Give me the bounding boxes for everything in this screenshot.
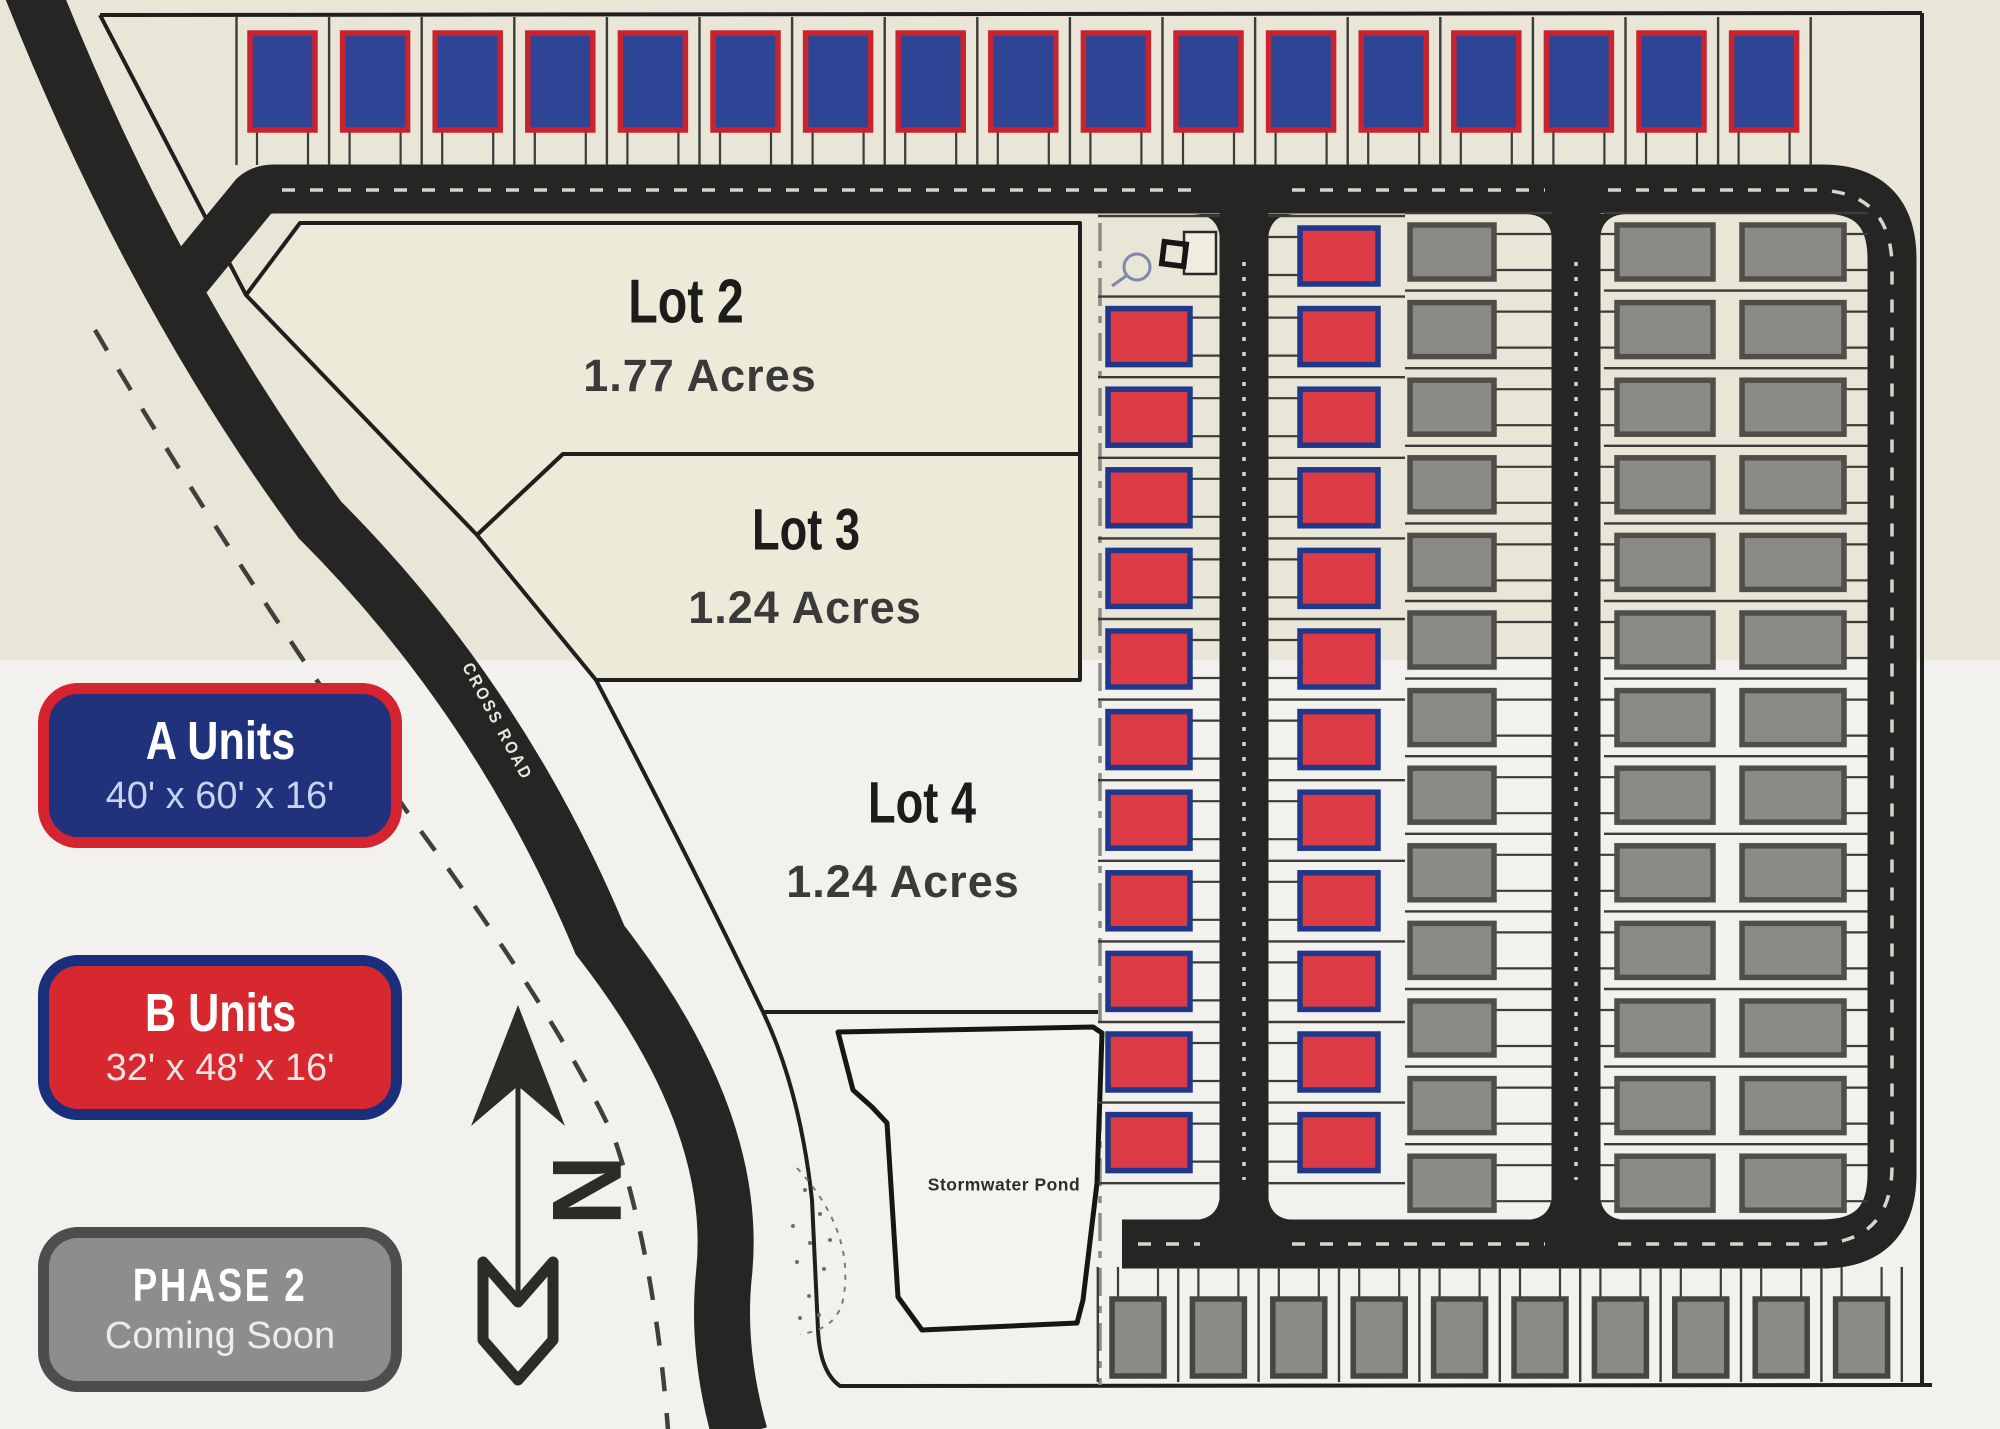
unit-phase2 bbox=[1410, 225, 1494, 279]
unit-a bbox=[713, 33, 778, 130]
unit-phase2 bbox=[1192, 1299, 1244, 1376]
legend-phase2-subtitle: Coming Soon bbox=[105, 1315, 335, 1358]
unit-phase2 bbox=[1617, 846, 1713, 900]
unit-phase2 bbox=[1353, 1299, 1405, 1376]
unit-a bbox=[1546, 33, 1611, 130]
unit-b bbox=[1300, 389, 1378, 445]
legend-b-dims: 32' x 48' x 16' bbox=[106, 1047, 335, 1090]
unit-phase2 bbox=[1617, 923, 1713, 977]
unit-b bbox=[1300, 550, 1378, 606]
unit-b bbox=[1108, 309, 1190, 365]
unit-b bbox=[1300, 792, 1378, 848]
unit-b bbox=[1300, 953, 1378, 1009]
unit-b bbox=[1108, 550, 1190, 606]
unit-b bbox=[1300, 1115, 1378, 1171]
unit-phase2 bbox=[1617, 1156, 1713, 1210]
unit-b bbox=[1108, 712, 1190, 768]
unit-phase2 bbox=[1742, 768, 1844, 822]
unit-phase2 bbox=[1742, 380, 1844, 434]
lot3-acres: 1.24 Acres bbox=[688, 582, 922, 634]
unit-a bbox=[250, 33, 315, 130]
unit-phase2 bbox=[1410, 1156, 1494, 1210]
top-boundary-line bbox=[100, 13, 1922, 15]
unit-a bbox=[1454, 33, 1519, 130]
unit-b bbox=[1108, 470, 1190, 526]
stormwater-pond-label: Stormwater Pond bbox=[928, 1175, 1080, 1196]
unit-a bbox=[1361, 33, 1426, 130]
unit-phase2 bbox=[1617, 303, 1713, 357]
legend-a-units: A Units 40' x 60' x 16' bbox=[38, 683, 402, 848]
lot2-name: Lot 2 bbox=[628, 267, 744, 338]
unit-b bbox=[1108, 631, 1190, 687]
unit-phase2 bbox=[1617, 458, 1713, 512]
unit-phase2 bbox=[1594, 1299, 1646, 1376]
unit-b bbox=[1300, 873, 1378, 929]
lot2-acres: 1.77 Acres bbox=[583, 350, 817, 402]
unit-phase2 bbox=[1755, 1299, 1807, 1376]
legend-a-dims: 40' x 60' x 16' bbox=[106, 775, 335, 818]
unit-a bbox=[898, 33, 963, 130]
site-plan-map: N Lot 2 1.77 Acres Lot 3 1.24 Acres Lot … bbox=[0, 0, 2000, 1429]
lot3-polygon bbox=[477, 454, 1080, 680]
legend-a-title: A Units bbox=[145, 713, 295, 770]
lot4-name: Lot 4 bbox=[868, 770, 976, 837]
lot4-acres: 1.24 Acres bbox=[786, 856, 1020, 908]
unit-a bbox=[1083, 33, 1148, 130]
unit-b bbox=[1300, 309, 1378, 365]
unit-a bbox=[528, 33, 593, 130]
unit-a bbox=[1732, 33, 1797, 130]
unit-phase2 bbox=[1410, 923, 1494, 977]
unit-phase2 bbox=[1742, 303, 1844, 357]
unit-b bbox=[1300, 1034, 1378, 1090]
unit-phase2 bbox=[1742, 458, 1844, 512]
unit-phase2 bbox=[1675, 1299, 1727, 1376]
unit-phase2 bbox=[1434, 1299, 1486, 1376]
unit-a bbox=[806, 33, 871, 130]
unit-phase2 bbox=[1742, 1079, 1844, 1133]
unit-a bbox=[620, 33, 685, 130]
unit-b bbox=[1108, 389, 1190, 445]
unit-b bbox=[1108, 1115, 1190, 1171]
north-arrow-letter: N bbox=[532, 1155, 642, 1226]
unit-phase2 bbox=[1742, 1156, 1844, 1210]
lot3-name: Lot 3 bbox=[752, 497, 860, 564]
unit-phase2 bbox=[1410, 535, 1494, 589]
unit-b bbox=[1300, 712, 1378, 768]
unit-phase2 bbox=[1410, 1001, 1494, 1055]
unit-phase2 bbox=[1410, 846, 1494, 900]
unit-b bbox=[1108, 873, 1190, 929]
unit-a bbox=[1639, 33, 1704, 130]
unit-phase2 bbox=[1514, 1299, 1566, 1376]
unit-phase2 bbox=[1410, 1079, 1494, 1133]
well-stall-outline bbox=[1184, 232, 1216, 274]
unit-b bbox=[1300, 228, 1378, 284]
legend-b-title: B Units bbox=[144, 985, 295, 1042]
unit-b bbox=[1300, 470, 1378, 526]
unit-a bbox=[343, 33, 408, 130]
unit-phase2 bbox=[1617, 225, 1713, 279]
unit-phase2 bbox=[1742, 691, 1844, 745]
unit-phase2 bbox=[1617, 768, 1713, 822]
unit-a bbox=[1269, 33, 1334, 130]
unit-phase2 bbox=[1273, 1299, 1325, 1376]
unit-a bbox=[1176, 33, 1241, 130]
unit-phase2 bbox=[1410, 458, 1494, 512]
unit-phase2 bbox=[1410, 380, 1494, 434]
unit-phase2 bbox=[1742, 535, 1844, 589]
unit-phase2 bbox=[1742, 1001, 1844, 1055]
unit-b bbox=[1108, 1034, 1190, 1090]
unit-phase2 bbox=[1410, 691, 1494, 745]
unit-phase2 bbox=[1617, 1001, 1713, 1055]
unit-phase2 bbox=[1617, 691, 1713, 745]
legend-b-units: B Units 32' x 48' x 16' bbox=[38, 955, 402, 1120]
unit-phase2 bbox=[1617, 1079, 1713, 1133]
unit-phase2 bbox=[1410, 613, 1494, 667]
unit-phase2 bbox=[1742, 225, 1844, 279]
unit-phase2 bbox=[1112, 1299, 1164, 1376]
unit-phase2 bbox=[1617, 535, 1713, 589]
legend-phase2: PHASE 2 Coming Soon bbox=[38, 1227, 402, 1392]
unit-b bbox=[1300, 631, 1378, 687]
unit-b bbox=[1108, 792, 1190, 848]
unit-phase2 bbox=[1617, 613, 1713, 667]
unit-phase2 bbox=[1410, 303, 1494, 357]
unit-phase2 bbox=[1742, 846, 1844, 900]
unit-a bbox=[435, 33, 500, 130]
unit-phase2 bbox=[1617, 380, 1713, 434]
unit-a bbox=[991, 33, 1056, 130]
unit-phase2 bbox=[1410, 768, 1494, 822]
unit-b bbox=[1108, 953, 1190, 1009]
unit-phase2 bbox=[1836, 1299, 1888, 1376]
legend-phase2-title: PHASE 2 bbox=[133, 1261, 307, 1309]
unit-phase2 bbox=[1742, 613, 1844, 667]
unit-phase2 bbox=[1742, 923, 1844, 977]
